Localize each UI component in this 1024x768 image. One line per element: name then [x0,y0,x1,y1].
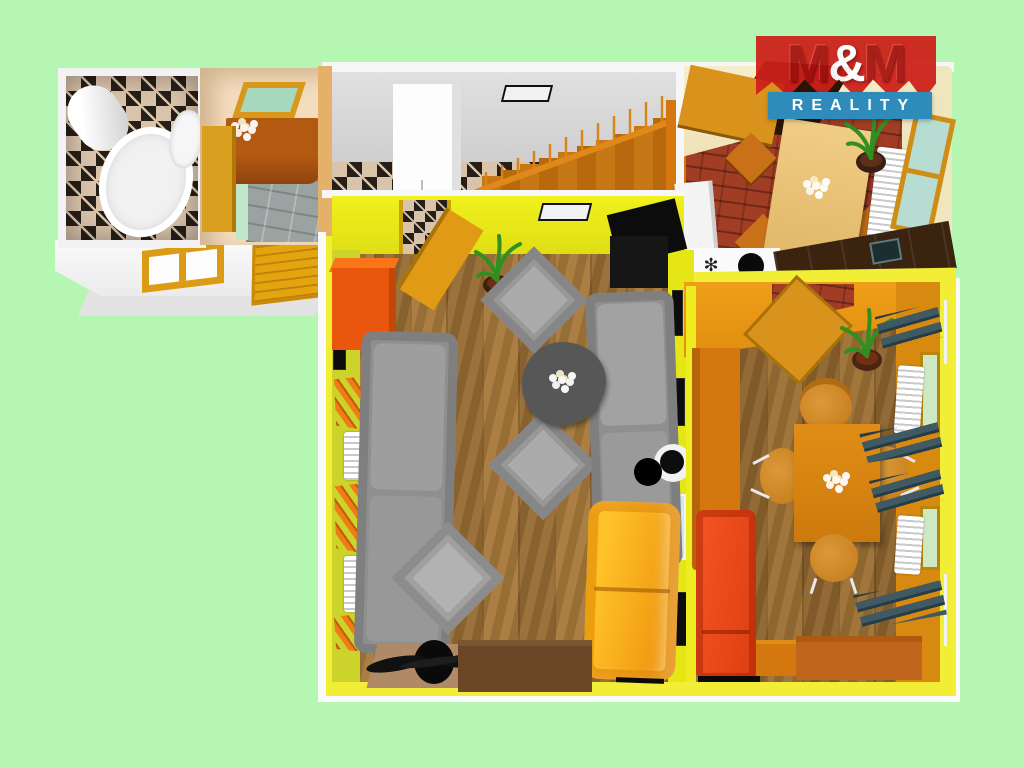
dining-radiator [894,515,924,575]
dining-table-flowers [832,476,840,484]
kitchen-wall-left [676,66,684,196]
dining-window-glass [920,506,940,570]
armchair-cushion [413,543,484,614]
red-sofa [696,510,756,680]
closet-door [202,126,236,232]
logo-reality-banner: REALITY [768,92,932,119]
outer-white-left [318,232,326,702]
closet-floor [246,176,326,242]
dining-side-table [756,640,796,676]
sofa-seam [594,587,670,594]
tv-stand [610,236,668,288]
sofa-cushion [370,343,446,491]
closet-flowers [240,124,248,132]
sofa-cushion [597,302,667,426]
yellow-sofa [583,500,681,681]
sofa-seam [702,630,750,634]
kitchen-sink [869,238,902,265]
dining-chair-south [810,534,858,582]
closet-mirror [232,82,306,118]
living-chest [458,640,592,692]
closet-mint-strip [236,182,248,240]
floor-plan-render: ✻ [0,0,1024,768]
logo-reality-text: REALITY [784,97,916,115]
window-mullion [907,168,939,180]
armchair-cushion [508,430,579,501]
armchair-cushion [500,266,568,334]
threshold [698,676,760,682]
coffee-table-flowers [558,376,566,384]
kitchen-table-flowers [812,182,820,190]
logo-ampersand: & [828,36,864,92]
hall-left-wall [318,66,332,240]
dining-chest [796,636,922,680]
window-mullion [179,253,186,282]
floor-lamp-top [660,450,684,474]
curtain-rod [944,300,947,364]
living-vent [538,203,592,221]
floor-lamp-base [634,458,662,486]
